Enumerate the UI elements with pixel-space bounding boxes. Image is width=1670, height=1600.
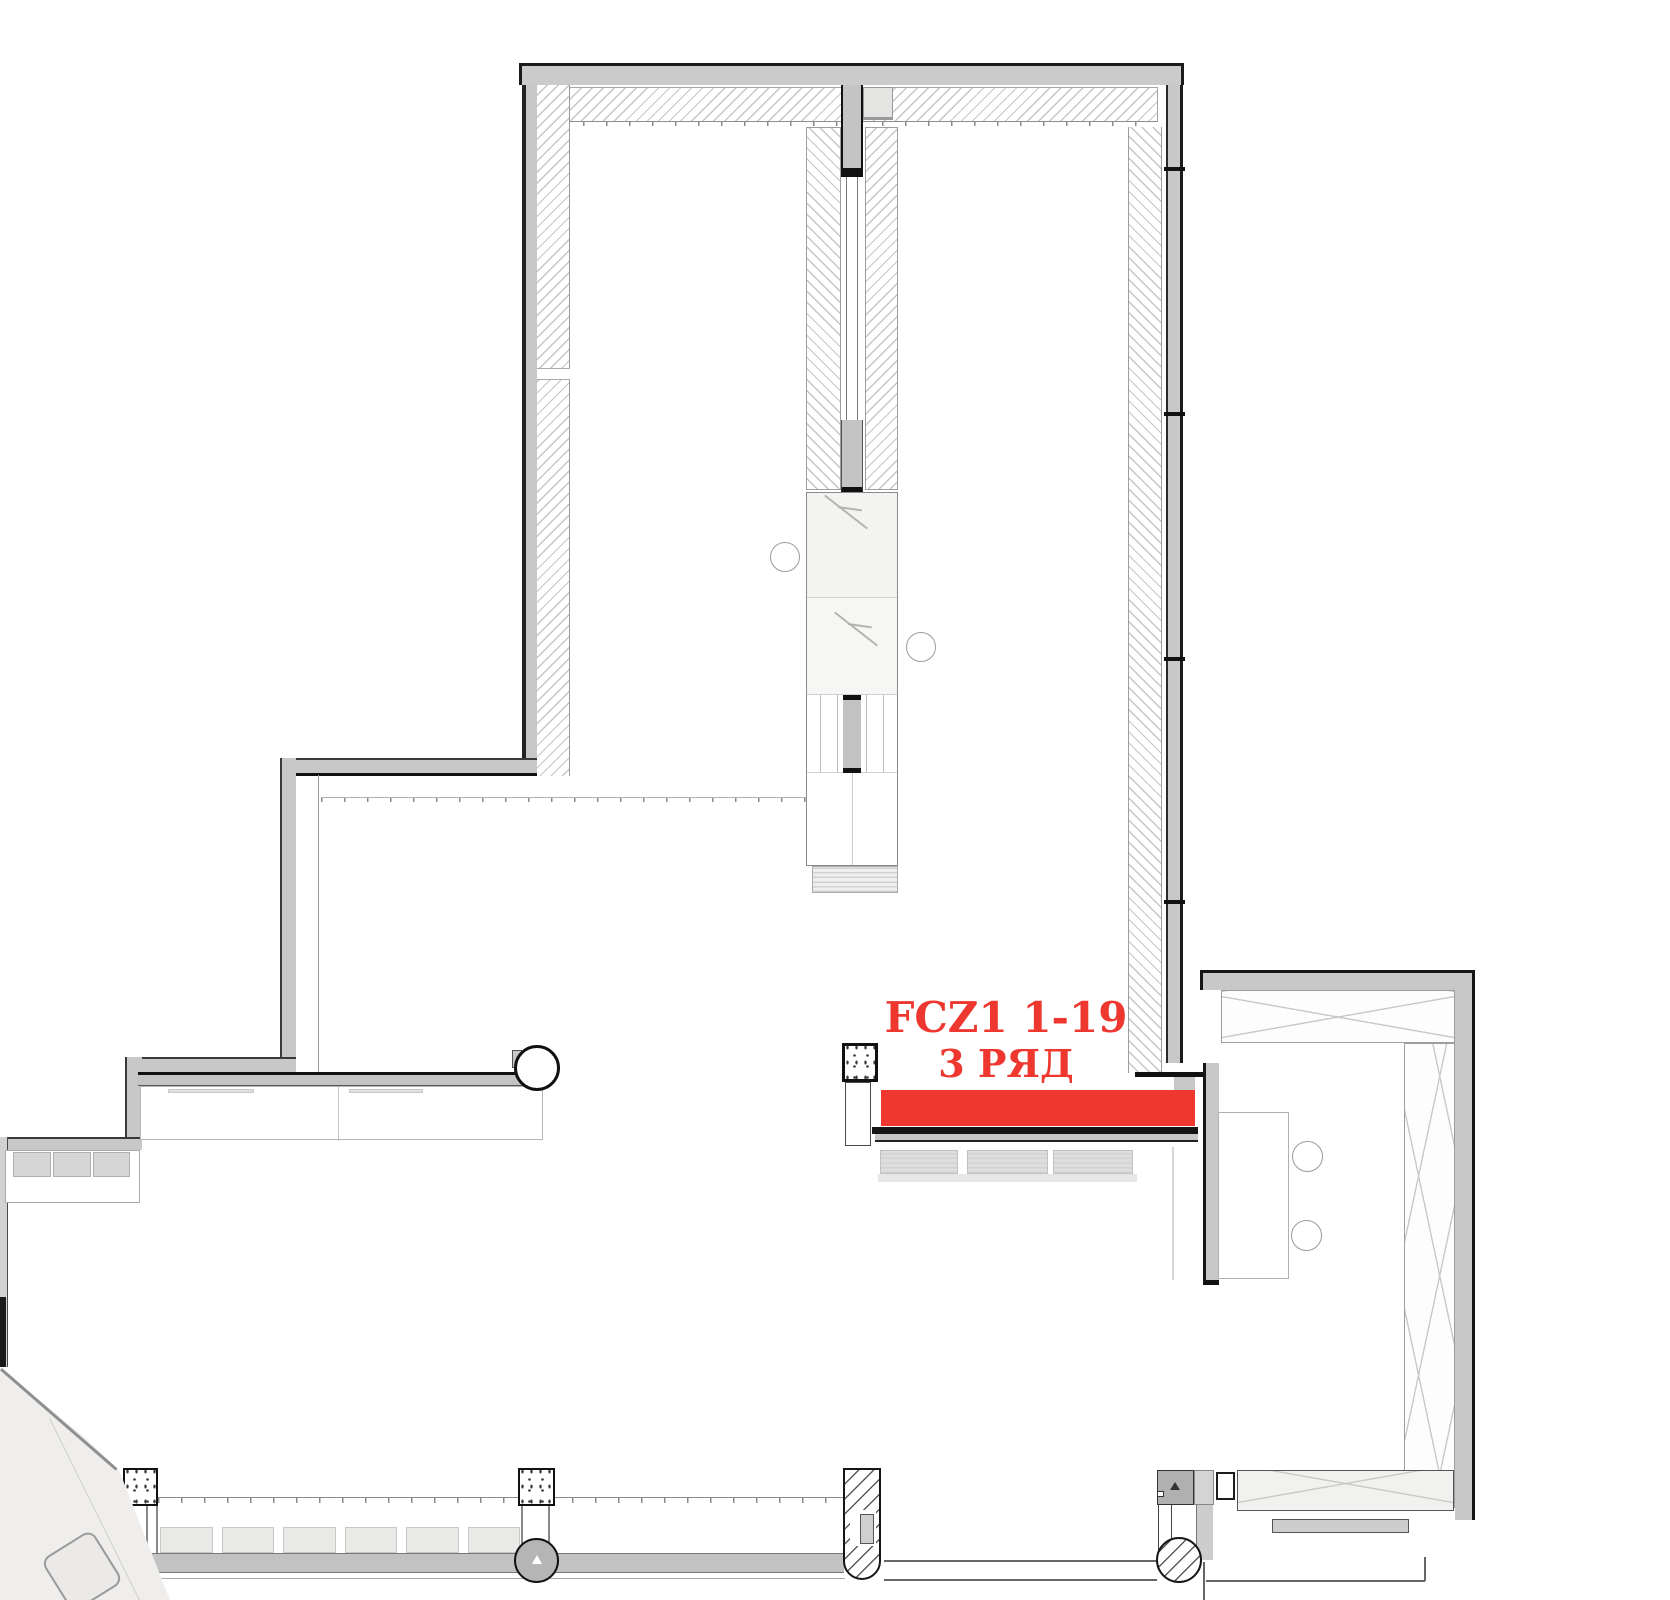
coat-hook-decor	[824, 495, 868, 530]
entry-block-light	[1194, 1470, 1214, 1505]
zone-drawer	[880, 1150, 958, 1174]
west-cabinet-drawer	[13, 1152, 51, 1177]
mid-wall-hatch-left	[806, 127, 841, 490]
threshold-line	[884, 1560, 1157, 1562]
left-wall-joint	[537, 368, 570, 380]
mid-wall-hatch-right	[865, 127, 898, 490]
south-wall-line	[140, 1578, 845, 1579]
stool-circle	[1292, 1141, 1323, 1172]
speckled-column	[518, 1468, 555, 1506]
step-wall-black-line	[295, 773, 537, 776]
zone-highlight[interactable]	[881, 1090, 1195, 1126]
threshold-line	[1203, 1562, 1205, 1600]
seat-cell	[222, 1527, 275, 1553]
wardrobe-section-1	[807, 493, 897, 598]
mid-post-shelf	[863, 87, 893, 120]
room-right-wall	[1455, 970, 1475, 1520]
zone-code-label[interactable]: FCZ1 1-19	[820, 997, 1192, 1039]
room-top-wardrobe	[1221, 990, 1455, 1043]
threshold-line	[1206, 1580, 1425, 1582]
seat-cell	[345, 1527, 398, 1553]
door-swing-line	[1172, 1147, 1174, 1280]
mid-glazing-lines	[846, 177, 858, 420]
stool-circle	[1291, 1220, 1322, 1251]
stool-circle	[906, 632, 936, 662]
mid-mullion-cap	[841, 168, 863, 177]
drawer-handle	[349, 1089, 423, 1093]
room-left-wall	[1203, 1063, 1219, 1285]
right-wall-hatch	[1128, 127, 1162, 1073]
threshold-line	[884, 1579, 1157, 1581]
west-wall-black-bar	[0, 1297, 6, 1367]
south-wall-band	[140, 1553, 844, 1573]
hatched-pier-column	[843, 1468, 881, 1580]
speckled-column	[842, 1043, 878, 1082]
wrapped-round-column	[514, 1538, 559, 1583]
hatched-round-column	[1156, 1537, 1202, 1583]
step-wall-inner-line	[318, 775, 319, 1075]
zone-drawer	[967, 1150, 1048, 1174]
round-column	[514, 1045, 560, 1091]
stool-circle	[770, 542, 800, 572]
west-cabinet-drawer	[53, 1152, 91, 1177]
bottom-wardrobe-panel	[1237, 1470, 1454, 1511]
triangle-mark	[532, 1555, 542, 1564]
threshold-line	[1424, 1557, 1426, 1581]
seat-cell	[406, 1527, 459, 1553]
left-counter-top	[138, 1072, 543, 1086]
west-cabinet-drawer	[93, 1152, 130, 1177]
floor-plan: FCZ1 1-19 3 РЯД	[0, 0, 1670, 1600]
west-wall-band	[0, 1137, 142, 1150]
zone-bench-gray-band	[875, 1134, 1198, 1142]
coat-hook-decor	[834, 612, 878, 647]
soffit-line	[321, 797, 806, 802]
window-sill-line	[158, 1497, 846, 1503]
window-seat	[160, 1527, 520, 1553]
bottom-wardrobe-bar	[1272, 1519, 1409, 1533]
seat-cell	[468, 1527, 521, 1553]
door-leaf	[845, 1082, 871, 1146]
wardrobe-mullion	[843, 695, 861, 773]
left-wall-hatch	[537, 85, 570, 776]
wardrobe-section-4	[807, 773, 897, 865]
right-facade-band	[1166, 85, 1183, 1063]
left-wall-gray-band	[526, 85, 537, 776]
room-top-wall	[1200, 970, 1475, 990]
triangle-mark	[1170, 1482, 1180, 1490]
facade-mullion-tick	[1164, 657, 1185, 661]
seat-cell	[160, 1527, 213, 1553]
facade-mullion-tick	[1164, 167, 1185, 171]
zone-bench-black-band	[872, 1127, 1198, 1134]
mid-mullion-bottom	[841, 420, 863, 492]
facade-mullion-tick	[1164, 900, 1185, 904]
wardrobe-section-3	[807, 695, 897, 773]
zone-drawer	[1053, 1150, 1133, 1174]
zone-cabinet-base	[878, 1174, 1137, 1182]
facade-mullion-tick	[1164, 412, 1185, 416]
top-wall-band	[519, 63, 1184, 85]
entry-block-dark	[1157, 1470, 1194, 1505]
top-hatch-strip-right	[862, 87, 1158, 122]
pier-window-bar	[860, 1514, 874, 1544]
wardrobe-section-2	[807, 598, 897, 695]
mid-mullion-top	[841, 85, 863, 168]
drawer-handle	[168, 1089, 254, 1093]
radiator	[812, 866, 898, 893]
room-table	[1218, 1112, 1289, 1279]
lower-step-horizontal	[125, 1057, 296, 1072]
step-wall-vertical	[280, 758, 296, 1062]
left-counter-cabinet	[140, 1086, 543, 1140]
top-hatch-strip-left	[537, 87, 842, 122]
entry-window	[1216, 1472, 1235, 1500]
room-right-wardrobe	[1404, 1043, 1455, 1508]
seat-cell	[283, 1527, 336, 1553]
